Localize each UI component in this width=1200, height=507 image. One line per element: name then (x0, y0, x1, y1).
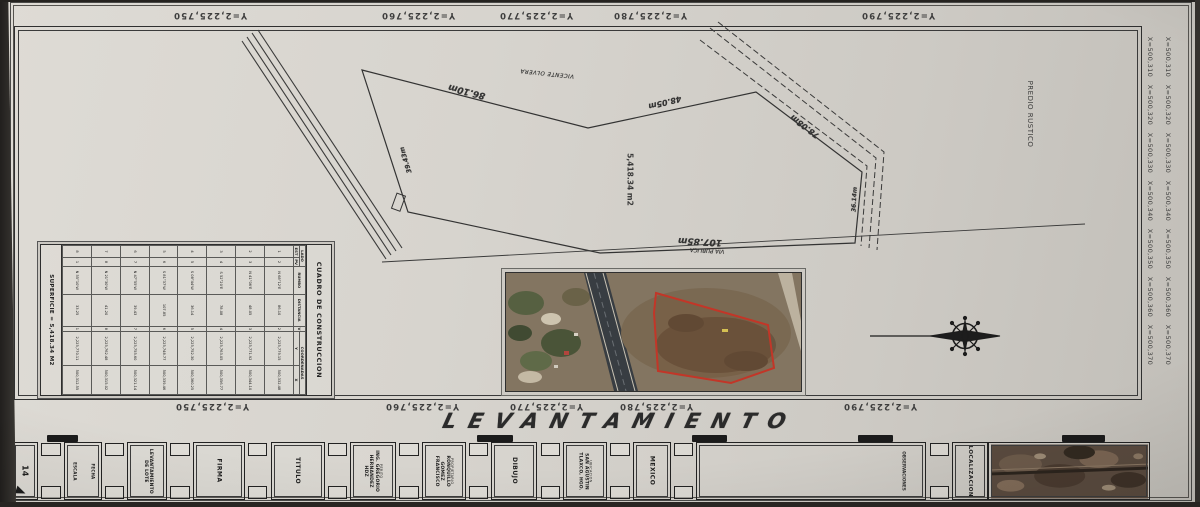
grid-x-label: X=500,360 (1164, 272, 1172, 322)
table-cell: 6 (149, 258, 178, 267)
north-compass (870, 316, 1000, 355)
owner-name: PROPIETARIORONQUILLO GOMEZ FRANCISCO (434, 450, 454, 492)
localizacion-label: LOCALIZACION (967, 445, 974, 496)
observations-box: OBSERVACIONES (696, 442, 926, 500)
grid-x-label: X=500,330 (1146, 128, 1154, 178)
table-cell: 2,225,752.30 (178, 332, 207, 366)
col-header-est: EST (294, 246, 300, 258)
table-cell: 500,332.48 (265, 365, 294, 394)
grid-x-label: X=500,310 (1164, 32, 1172, 82)
strip-connector (38, 442, 64, 500)
location-role: UBICACION (588, 450, 592, 492)
strip-connector (396, 442, 422, 500)
table-row: 56S 81°37'W107.8562,225,748.77500,339.46 (149, 246, 178, 395)
table-cell: 500,312.55 (63, 365, 92, 394)
country-label: MEXICO (648, 456, 655, 485)
table-cell: 3 (207, 246, 236, 258)
grid-y-label: Y=2,225,760 (368, 10, 468, 20)
photo-background-edge (1195, 0, 1200, 507)
grid-x-label: X=500,340 (1146, 176, 1154, 226)
table-cell: 36.14 (178, 294, 207, 326)
table-cell: 2,225,748.77 (149, 332, 178, 366)
table-cell: 39.43 (120, 294, 149, 326)
connector-tick (674, 443, 693, 456)
table-cell: 86.10 (265, 294, 294, 326)
localizacion-photo-box (988, 442, 1150, 500)
grid-x-label: X=500,370 (1164, 320, 1172, 370)
table-row: 23N 41°06'E48.0532,225,771.92500,344.10 (236, 246, 265, 395)
survey-type-box: LEVANTAMIENTO DE LOTE (127, 442, 167, 500)
strip-connector (671, 442, 697, 500)
connector-tick (105, 443, 124, 456)
surveyor-name: PERITOING. GREGORIO HERNANDEZ HDZ (363, 449, 383, 493)
construction-table-grid: LADO RUMBO DISTANCIA V COORDENADAS EST P… (62, 245, 306, 395)
connector-tick (170, 443, 189, 456)
table-cell: 4 (178, 246, 207, 258)
fold-mark (692, 435, 727, 442)
north-mini-arrow-icon (15, 486, 27, 497)
table-cell: 2,225,770.11 (63, 332, 92, 366)
table-cell: 500,356.77 (207, 365, 236, 394)
paper-sheet: Y=2,225,750 Y=2,225,760 Y=2,225,770 Y=2,… (0, 0, 1200, 503)
country-box: MEXICO (633, 442, 671, 500)
grid-x-label: X=500,330 (1164, 128, 1172, 178)
table-cell: 500,344.10 (236, 365, 265, 394)
table-row: 12N 68°12'E86.1022,225,779.15500,332.48 (265, 246, 294, 395)
location-name: UBICACIONSAN AGUSTIN TLAXCO, HGO. (578, 450, 593, 492)
table-cell: 2 (236, 246, 265, 258)
surface-total-label: SUPERFICIE = 5,418.34 M2 (41, 245, 62, 395)
table-cell: 6 (120, 246, 149, 258)
table-cell: 5 (149, 246, 178, 258)
connector-tick (930, 443, 949, 456)
col-header-pv: PV (294, 258, 300, 267)
table-cell: 3 (236, 258, 265, 267)
table-cell: 107.85 (149, 294, 178, 326)
fold-mark (858, 435, 893, 442)
fold-mark (47, 435, 78, 442)
connector-tick (41, 486, 60, 499)
railroad-lines (242, 30, 402, 259)
localizacion-box: LOCALIZACION (952, 442, 988, 500)
table-cell: 500,315.02 (91, 365, 120, 394)
surveyor-name-text: ING. GREGORIO HERNANDEZ HDZ (363, 450, 379, 492)
strip-connector (167, 442, 193, 500)
table-cell: 7 (120, 258, 149, 267)
grid-y-label: Y=2,225,750 (162, 401, 262, 411)
connector-tick (930, 486, 949, 499)
table-cell: 2,225,762.48 (91, 332, 120, 366)
owner-role: PROPIETARIO (450, 450, 454, 492)
table-row: 34S 52°20'E78.0842,225,763.05500,356.77 (207, 246, 236, 395)
grid-y-label: Y=2,225,750 (160, 10, 260, 20)
strip-connector (607, 442, 633, 500)
location-name-text: SAN AGUSTIN TLAXCO, HGO. (578, 452, 588, 490)
table-cell: 8 (63, 246, 92, 258)
strip-connector (466, 442, 492, 500)
grid-y-label: Y=2,225,790 (848, 10, 948, 20)
table-cell: N 21°30'W (91, 267, 120, 294)
table-cell: 5 (178, 258, 207, 267)
owner-box: PROPIETARIORONQUILLO GOMEZ FRANCISCO (422, 442, 466, 500)
table-cell: 78.08 (207, 294, 236, 326)
connector-tick (541, 486, 560, 499)
table-cell: 48.05 (236, 294, 265, 326)
grid-x-label: X=500,350 (1146, 224, 1154, 274)
grid-x-label: X=500,320 (1164, 80, 1172, 130)
parcel-area-label: 5,418.34 m2 (626, 150, 635, 210)
table-cell: 41.20 (91, 294, 120, 326)
table-cell: S 81°37'W (149, 267, 178, 294)
table-cell: 500,360.25 (178, 365, 207, 394)
strip-connector (537, 442, 563, 500)
scale-box: 14 (12, 442, 38, 500)
col-header-rumbo: RUMBO (294, 267, 306, 294)
edge-length-label: 36.14m (850, 187, 858, 213)
scale-box-label: 14 (20, 465, 30, 477)
connector-tick (469, 486, 488, 499)
date-label: FECHA (89, 463, 94, 479)
connector-tick (170, 486, 189, 499)
table-cell: 500,321.14 (120, 365, 149, 394)
titulo-box: TITULO (271, 442, 325, 500)
connector-tick (469, 443, 488, 456)
table-cell: 1 (265, 246, 294, 258)
connector-tick (41, 443, 60, 456)
connector-tick (610, 443, 629, 456)
strip-connector (102, 442, 128, 500)
observations-label: OBSERVACIONES (901, 451, 906, 491)
strip-connector (245, 442, 271, 500)
strip-connector (926, 442, 952, 500)
grid-x-label: X=500,320 (1146, 80, 1154, 130)
table-cell: 2 (265, 258, 294, 267)
construction-table-title: CUADRO DE CONSTRUCCION (306, 245, 331, 395)
aerial-photo-inset (505, 272, 802, 392)
col-header-lado: LADO (300, 246, 306, 267)
photo-background-edge (0, 502, 1200, 507)
table-cell: 2,225,779.15 (265, 332, 294, 366)
grid-x-label: X=500,340 (1164, 176, 1172, 226)
connector-tick (674, 486, 693, 499)
table-row: 67N 47°55'W39.4372,225,755.60500,321.14 (120, 246, 149, 395)
table-cell: 2,225,763.05 (207, 332, 236, 366)
table-cell: S 52°20'E (207, 267, 236, 294)
fold-mark (1062, 435, 1105, 442)
aerial-photo-image (506, 273, 801, 391)
grid-x-label: X=500,310 (1146, 32, 1154, 82)
table-cell: N 55°10'W (63, 267, 92, 294)
table-cell: 7 (91, 246, 120, 258)
dibujo-box: DIBUJO (491, 442, 537, 500)
table-cell: 2,225,755.60 (120, 332, 149, 366)
table-cell: 4 (207, 258, 236, 267)
connector-tick (328, 443, 347, 456)
grid-y-label: Y=2,225,780 (600, 10, 700, 20)
connector-tick (248, 486, 267, 499)
table-cell: N 68°12'E (265, 267, 294, 294)
table-cell: 1 (63, 258, 92, 267)
firma-box: FIRMA (193, 442, 245, 500)
table-cell: N 47°55'W (120, 267, 149, 294)
col-header-distancia: DISTANCIA (294, 294, 306, 326)
strip-connector (325, 442, 351, 500)
table-cell: S 08°44'W (178, 267, 207, 294)
predio-rustico-label: PREDIO RUSTICO (1026, 79, 1034, 149)
table-row: 78N 21°30'W41.2082,225,762.48500,315.02 (91, 246, 120, 395)
col-header-x: X (294, 365, 300, 394)
photo-background-edge (0, 0, 1200, 2)
connector-tick (399, 443, 418, 456)
connector-tick (399, 486, 418, 499)
connector-tick (248, 443, 267, 456)
connector-tick (105, 486, 124, 499)
connector-tick (610, 486, 629, 499)
table-row: 81N 55°10'W33.2512,225,770.11500,312.55 (63, 246, 92, 395)
structure-symbol (392, 193, 406, 211)
grid-x-label: X=500,360 (1146, 272, 1154, 322)
via-publica-line (382, 224, 1085, 262)
table-cell: 33.25 (63, 294, 92, 326)
construction-table: CUADRO DE CONSTRUCCION LADO RUMBO DISTAN… (40, 244, 330, 394)
localizacion-photo-image (991, 444, 1148, 499)
grid-y-label: Y=2,225,770 (486, 10, 586, 20)
survey-type-label: LEVANTAMIENTO DE LOTE (142, 448, 153, 493)
connector-tick (328, 486, 347, 499)
table-cell: 8 (91, 258, 120, 267)
scanned-survey-plan: Y=2,225,750 Y=2,225,760 Y=2,225,770 Y=2,… (0, 0, 1200, 507)
fold-mark (477, 435, 513, 442)
scale-label: ESCALA (72, 462, 77, 481)
table-cell: 500,339.46 (149, 365, 178, 394)
col-header-coordenadas: COORDENADAS (300, 332, 306, 395)
grid-x-label: X=500,370 (1146, 320, 1154, 370)
surveyor-box: PERITOING. GREGORIO HERNANDEZ HDZ (350, 442, 396, 500)
dibujo-label: DIBUJO (511, 458, 518, 485)
location-box: UBICACIONSAN AGUSTIN TLAXCO, HGO. (563, 442, 607, 500)
grid-x-label: X=500,350 (1164, 224, 1172, 274)
connector-tick (541, 443, 560, 456)
owner-name-text: RONQUILLO GOMEZ FRANCISCO (434, 455, 450, 486)
col-header-y: Y (294, 332, 300, 366)
firma-label: FIRMA (215, 459, 222, 483)
table-cell: 2,225,771.92 (236, 332, 265, 366)
title-block: 14 ESCALA FECHA LEVANTAMIENTO DE LOTE FI… (12, 442, 1150, 500)
table-row: 45S 08°44'W36.1452,225,752.30500,360.25 (178, 246, 207, 395)
road-lines (700, 22, 884, 250)
surveyor-role: PERITO (379, 449, 383, 493)
table-cell: N 41°06'E (236, 267, 265, 294)
scale-date-box: ESCALA FECHA (64, 442, 102, 500)
construction-table-body: 12N 68°12'E86.1022,225,779.15500,332.482… (63, 246, 294, 395)
parcel-polygon (362, 70, 862, 253)
plan-title: LEVANTAMIENTO (327, 409, 914, 436)
titulo-label: TITULO (294, 458, 301, 485)
